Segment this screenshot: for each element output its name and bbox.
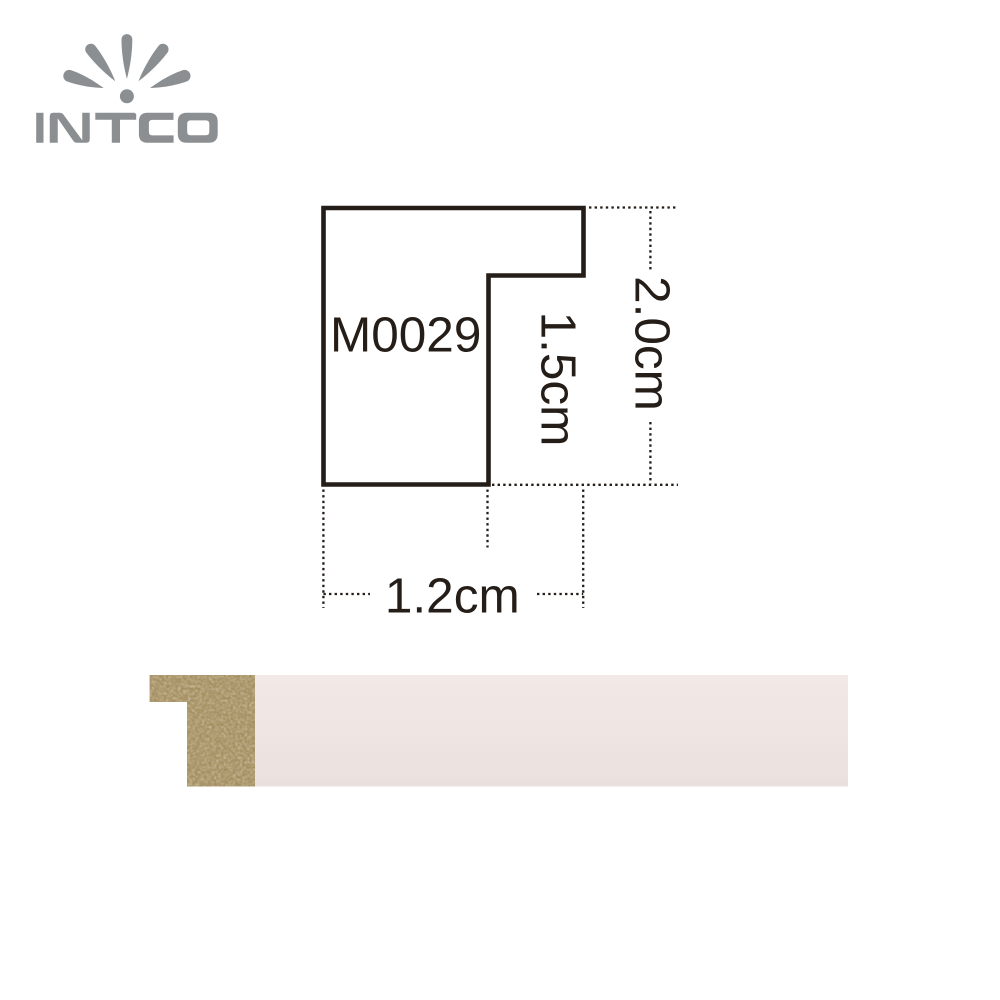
svg-text:1.2cm: 1.2cm <box>385 568 520 623</box>
svg-text:1.5cm: 1.5cm <box>531 312 586 447</box>
svg-text:M0029: M0029 <box>330 308 481 363</box>
svg-text:2.0cm: 2.0cm <box>625 276 680 411</box>
